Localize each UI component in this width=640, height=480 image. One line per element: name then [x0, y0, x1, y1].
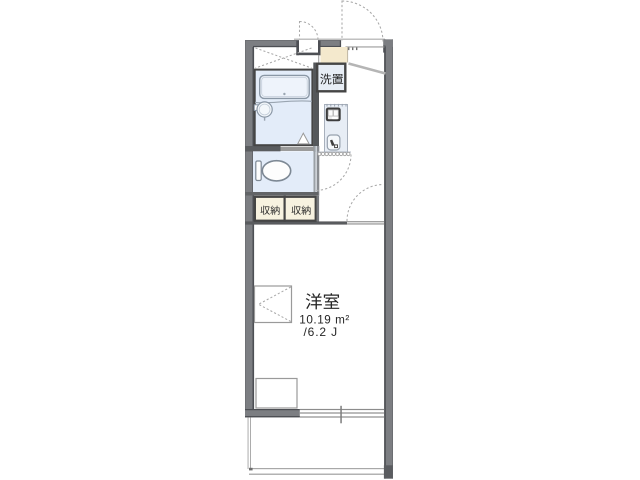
- svg-text:/6.2 J: /6.2 J: [304, 325, 338, 339]
